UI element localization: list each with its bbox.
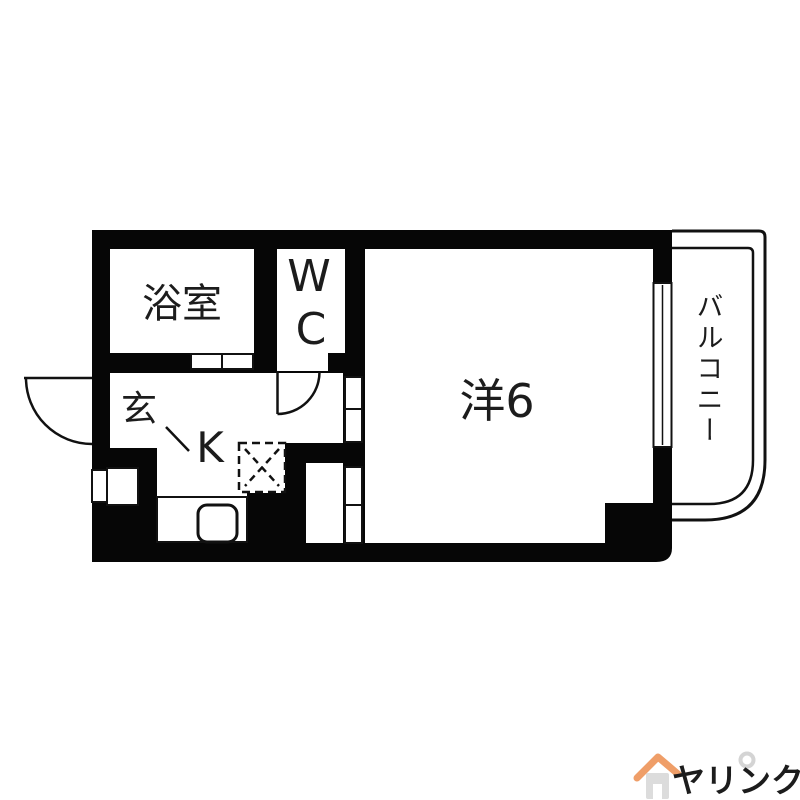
room-door-panel-3: [345, 467, 362, 505]
floor-plan-canvas: 浴室 W C 洋6 玄 K バルコニー ヤリンク: [0, 0, 800, 800]
room-door-panel-1: [345, 377, 362, 409]
house-door: [653, 784, 662, 799]
bath-door-panel-right: [222, 354, 253, 369]
dashed-placement-box-icon: [239, 443, 285, 492]
wc-door-opening: [277, 353, 328, 371]
sink-icon: [198, 505, 237, 542]
bath-door-panel-left: [191, 354, 222, 369]
floor-plan: 浴室 W C 洋6 玄 K バルコニー: [24, 230, 765, 562]
entrance-label: 玄: [121, 389, 157, 430]
logo: ヤリンク: [637, 754, 800, 800]
room-door-panel-4: [345, 505, 362, 543]
toilet-label-top: W: [287, 251, 331, 302]
room-door-panel-2: [345, 409, 362, 442]
western-room-label: 洋6: [459, 374, 534, 428]
alcove: [306, 463, 343, 543]
cabinet-icon: [92, 470, 107, 502]
logo-text: ヤリンク: [672, 761, 800, 800]
balcony-label: バルコニー: [692, 292, 723, 447]
bathroom-label: 浴室: [142, 281, 222, 327]
cabinet-icon: [107, 468, 138, 505]
toilet-label-bottom: C: [296, 304, 327, 355]
kitchen-label: K: [196, 423, 225, 472]
floor-plan-page: 浴室 W C 洋6 玄 K バルコニー ヤリンク: [0, 0, 800, 800]
wall-pillar: [605, 503, 653, 543]
